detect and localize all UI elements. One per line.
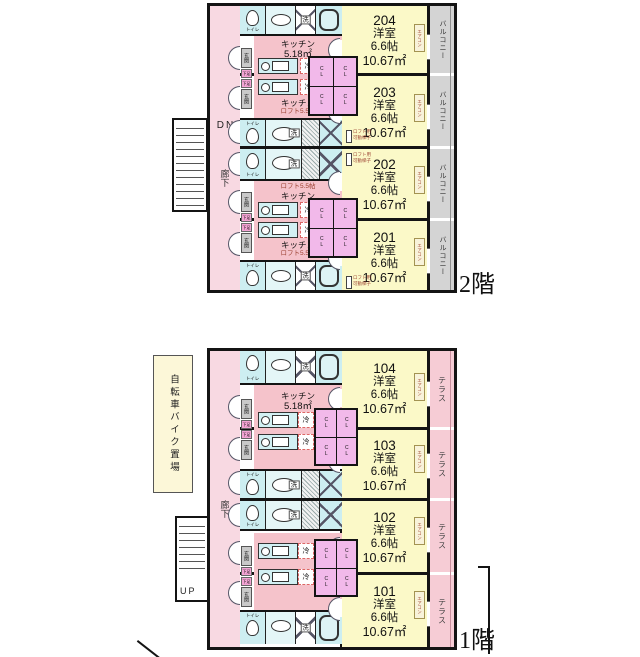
entrance-202: 玄関 (241, 192, 252, 212)
kitchen-counter-203 (258, 79, 298, 95)
sink-icon (271, 620, 291, 632)
sink-icon (271, 359, 291, 371)
toilet-icon (246, 10, 259, 26)
closet: CL (316, 410, 336, 437)
kitchen-counter-101 (258, 569, 298, 585)
floor-name-2f: 2階 (459, 264, 495, 299)
washer-label: 洗 (289, 510, 300, 519)
toilet-label: トイレ (240, 121, 265, 127)
bath-unit-203: トイレ 洗 (240, 118, 342, 146)
floor-plan-canvas: DN 廊下 バルコニー バルコニー バルコニー バルコニー 204 洋室 6.6… (0, 0, 640, 657)
balcony-label: バルコニー (437, 20, 447, 60)
closet: CL (310, 87, 333, 115)
door-gap (340, 173, 342, 191)
toilet-204: トイレ (240, 6, 266, 34)
shower-103 (320, 471, 342, 498)
stove-icon (272, 437, 289, 447)
door-gap (340, 599, 342, 617)
boundary-line (488, 566, 490, 654)
sink-bowl-icon (261, 438, 270, 447)
sink-bowl-icon (261, 62, 270, 71)
bath-unit-103: トイレ 洗 (240, 469, 342, 498)
entrance-104: 玄関 (241, 399, 252, 419)
balcony-label: バルコニー (437, 236, 447, 276)
stairs-down-2f (172, 118, 208, 212)
washer-label: 洗 (300, 15, 311, 24)
stove-icon (272, 546, 289, 556)
closet: CL (334, 229, 357, 257)
loft-ladder-203: ロフト用 可動梯子 (346, 129, 371, 140)
stairs-up-label: UP (180, 586, 197, 596)
washer-label: 洗 (289, 480, 300, 489)
washer-label: 洗 (300, 271, 311, 280)
terrace-label: テラス (437, 523, 448, 550)
closet: CL (334, 58, 357, 86)
entrance-201: 玄関 (241, 233, 252, 253)
toilet-label: トイレ (240, 613, 265, 619)
closet: CL (316, 541, 336, 568)
bath-unit-202: トイレ 洗 (240, 149, 342, 181)
aircon-204: エアコン (414, 24, 425, 52)
toilet-103: トイレ (240, 471, 266, 498)
washer-space-203 (302, 120, 320, 146)
shoebox-203: 下足 (241, 79, 252, 88)
stove-icon (272, 205, 289, 215)
boundary-line (137, 640, 163, 657)
washer-label: 洗 (289, 128, 300, 137)
aircon-101: エアコン (414, 591, 425, 619)
balcony-label: バルコニー (437, 91, 447, 131)
floor-1f: 廊下 テラス テラス テラス テラス 104 洋室 6.6帖 10.67㎡ 10… (207, 348, 457, 650)
bath-unit-104: トイレ 洗 (240, 351, 342, 385)
stove-icon (272, 225, 289, 235)
fridge-102: 冷 (298, 543, 314, 559)
terrace-label: テラス (437, 376, 448, 403)
toilet-202: トイレ (240, 149, 266, 179)
kitchen-counter-104 (258, 412, 298, 428)
closet: CL (316, 438, 336, 465)
kitchen-counter-202 (258, 202, 298, 218)
floor-2f: DN 廊下 バルコニー バルコニー バルコニー バルコニー 204 洋室 6.6… (207, 3, 457, 293)
washbasin-202: 洗 (266, 149, 302, 179)
toilet-icon (246, 479, 259, 495)
fridge-103: 冷 (298, 434, 314, 450)
stove-icon (272, 82, 289, 92)
shoebox-101: 下足 (241, 577, 252, 586)
toilet-201: トイレ (240, 262, 266, 290)
washbasin-203: 洗 (266, 120, 302, 146)
washer-label: 洗 (289, 159, 300, 168)
shoebox-202: 下足 (241, 213, 252, 222)
sink-icon (271, 14, 291, 26)
aircon-104: エアコン (414, 373, 425, 401)
kitchen-counter-102 (258, 543, 298, 559)
bath-unit-201: トイレ 洗 (240, 260, 342, 290)
aircon-103: エアコン (414, 445, 425, 473)
closets-104-103: CL CL CL CL (314, 408, 358, 466)
toilet-label: トイレ (240, 27, 265, 33)
toilet-203: トイレ (240, 120, 266, 146)
balcony-label: バルコニー (437, 164, 447, 204)
toilet-icon (246, 620, 259, 636)
washbasin-103: 洗 (266, 471, 302, 498)
sink-bowl-icon (261, 416, 270, 425)
stove-icon (272, 572, 289, 582)
sink-bowl-icon (261, 83, 270, 92)
washer-label: 洗 (300, 623, 311, 632)
aircon-202: エアコン (414, 166, 425, 194)
shoebox-103: 下足 (241, 430, 252, 439)
stove-icon (272, 61, 289, 71)
balcony-railing (450, 6, 451, 290)
sink-bowl-icon (261, 547, 270, 556)
closets-204-203: CL CL CL CL (308, 56, 358, 116)
shower-102 (320, 501, 342, 529)
kitchen-counter-103 (258, 434, 298, 450)
stove-icon (272, 415, 289, 425)
washbasin-102: 洗 (266, 501, 302, 529)
aircon-203: エアコン (414, 94, 425, 122)
bathtub-104 (316, 351, 342, 383)
washbasin-101 (266, 612, 296, 644)
entrance-101: 玄関 (241, 587, 252, 607)
toilet-icon (246, 505, 259, 521)
toilet-icon (246, 270, 259, 286)
bathtub-204 (316, 6, 342, 34)
toilet-label: トイレ (240, 472, 265, 478)
bath-unit-101: トイレ 洗 (240, 610, 342, 644)
shoebox-104: 下足 (241, 420, 252, 429)
entrance-103: 玄関 (241, 440, 252, 460)
washbasin-204 (266, 6, 296, 34)
terrace-edge (450, 351, 451, 647)
closet: CL (337, 438, 357, 465)
closet: CL (310, 200, 333, 228)
kitchen-counter-204 (258, 58, 298, 74)
shoebox-201: 下足 (241, 223, 252, 232)
aircon-201: エアコン (414, 238, 425, 266)
closet: CL (316, 569, 336, 596)
toilet-101: トイレ (240, 612, 266, 644)
closet: CL (337, 410, 357, 437)
closets-102-101: CL CL CL CL (314, 539, 358, 597)
loft-ladder-201: ロフト用 可動梯子 (346, 275, 371, 286)
washer-201: 洗 (296, 262, 316, 290)
washer-space-102 (302, 501, 320, 529)
toilet-icon (246, 355, 259, 371)
washer-104: 洗 (296, 351, 316, 383)
toilet-icon (246, 153, 259, 169)
terrace-label: テラス (437, 451, 448, 478)
sink-bowl-icon (261, 206, 270, 215)
fridge-104: 冷 (298, 412, 314, 428)
bike-parking: 自転車バイク置場 (153, 355, 193, 493)
bathtub-icon (319, 354, 339, 380)
sink-bowl-icon (261, 573, 270, 582)
shoebox-204: 下足 (241, 69, 252, 78)
closet: CL (310, 58, 333, 86)
washbasin-201 (266, 262, 296, 290)
window (427, 176, 430, 202)
toilet-icon (246, 128, 259, 144)
washer-space-103 (302, 471, 320, 498)
washer-label: 洗 (300, 362, 311, 371)
entrance-102: 玄関 (241, 546, 252, 566)
closet: CL (310, 229, 333, 257)
washer-space-202 (302, 149, 320, 179)
window (427, 34, 430, 60)
loft-ladder-202: ロフト用 可動梯子 (346, 152, 371, 163)
window (427, 601, 430, 627)
bath-unit-204: トイレ 洗 (240, 6, 342, 36)
sink-bowl-icon (261, 226, 270, 235)
closet: CL (337, 541, 357, 568)
stairs-up-1f: UP (175, 516, 209, 602)
toilet-102: トイレ (240, 501, 266, 529)
window (427, 248, 430, 274)
shoebox-102: 下足 (241, 567, 252, 576)
washbasin-104 (266, 351, 296, 383)
window (427, 104, 430, 130)
entrance-203: 玄関 (241, 89, 252, 109)
kitchen-counter-201 (258, 222, 298, 238)
closet: CL (337, 569, 357, 596)
washer-101: 洗 (296, 612, 316, 644)
closet: CL (334, 200, 357, 228)
toilet-label: トイレ (240, 172, 265, 178)
toilet-label: トイレ (240, 522, 265, 528)
door-gap (340, 389, 342, 407)
window (427, 381, 430, 407)
entrance-204: 玄関 (241, 48, 252, 68)
toilet-label: トイレ (240, 376, 265, 382)
terrace-label: テラス (437, 598, 448, 625)
boundary-line (478, 566, 489, 568)
washer-204: 洗 (296, 6, 316, 34)
toilet-label: トイレ (240, 263, 265, 269)
bath-unit-102: トイレ 洗 (240, 501, 342, 531)
sink-icon (271, 270, 291, 282)
closets-202-201: CL CL CL CL (308, 198, 358, 258)
window (427, 527, 430, 553)
stairs-steps (179, 520, 205, 574)
aircon-102: エアコン (414, 517, 425, 545)
closet: CL (334, 87, 357, 115)
bathtub-icon (319, 9, 339, 31)
toilet-104: トイレ (240, 351, 266, 383)
window (427, 453, 430, 479)
stairs-steps (176, 122, 204, 208)
fridge-101: 冷 (298, 569, 314, 585)
